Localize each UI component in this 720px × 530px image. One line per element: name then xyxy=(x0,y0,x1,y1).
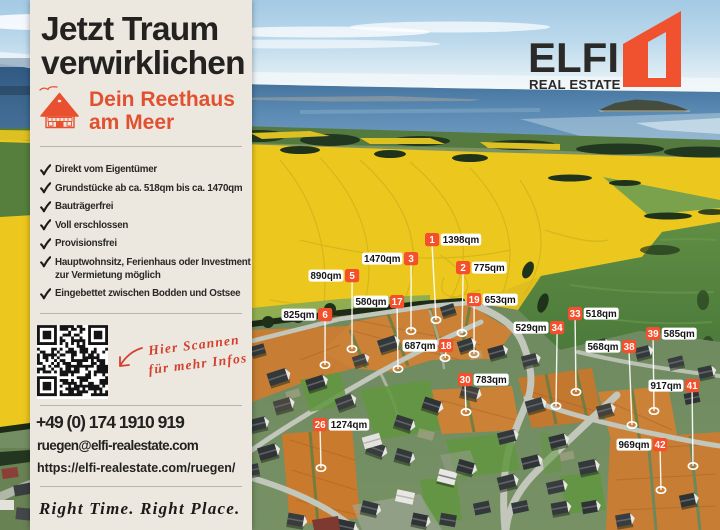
svg-text:6: 6 xyxy=(322,310,328,321)
svg-text:41: 41 xyxy=(687,381,698,392)
svg-text:ELFI: ELFI xyxy=(528,34,619,81)
svg-text:783qm: 783qm xyxy=(476,375,507,386)
svg-text:18: 18 xyxy=(441,341,452,352)
svg-text:39: 39 xyxy=(648,329,659,340)
svg-text:580qm: 580qm xyxy=(355,297,386,308)
svg-text:42: 42 xyxy=(655,440,666,451)
svg-text:1398qm: 1398qm xyxy=(443,235,480,246)
svg-text:917qm: 917qm xyxy=(650,381,681,392)
svg-text:1274qm: 1274qm xyxy=(331,420,368,431)
svg-text:2: 2 xyxy=(460,263,466,274)
svg-text:30: 30 xyxy=(460,375,471,386)
svg-text:33: 33 xyxy=(570,309,581,320)
svg-text:5: 5 xyxy=(349,271,355,282)
svg-text:585qm: 585qm xyxy=(664,329,695,340)
svg-text:890qm: 890qm xyxy=(310,271,341,282)
svg-text:529qm: 529qm xyxy=(515,323,546,334)
svg-text:653qm: 653qm xyxy=(485,295,516,306)
svg-text:17: 17 xyxy=(392,297,403,308)
svg-text:19: 19 xyxy=(469,295,480,306)
svg-text:38: 38 xyxy=(624,342,635,353)
svg-text:775qm: 775qm xyxy=(474,263,505,274)
svg-text:1470qm: 1470qm xyxy=(364,254,401,265)
svg-text:26: 26 xyxy=(315,420,326,431)
svg-text:687qm: 687qm xyxy=(404,341,435,352)
svg-text:3: 3 xyxy=(408,254,414,265)
svg-text:REAL ESTATE: REAL ESTATE xyxy=(529,77,621,92)
svg-text:34: 34 xyxy=(552,323,563,334)
svg-text:518qm: 518qm xyxy=(586,309,617,320)
svg-text:1: 1 xyxy=(429,235,435,246)
svg-text:969qm: 969qm xyxy=(618,440,649,451)
svg-text:825qm: 825qm xyxy=(283,310,314,321)
svg-text:568qm: 568qm xyxy=(587,342,618,353)
